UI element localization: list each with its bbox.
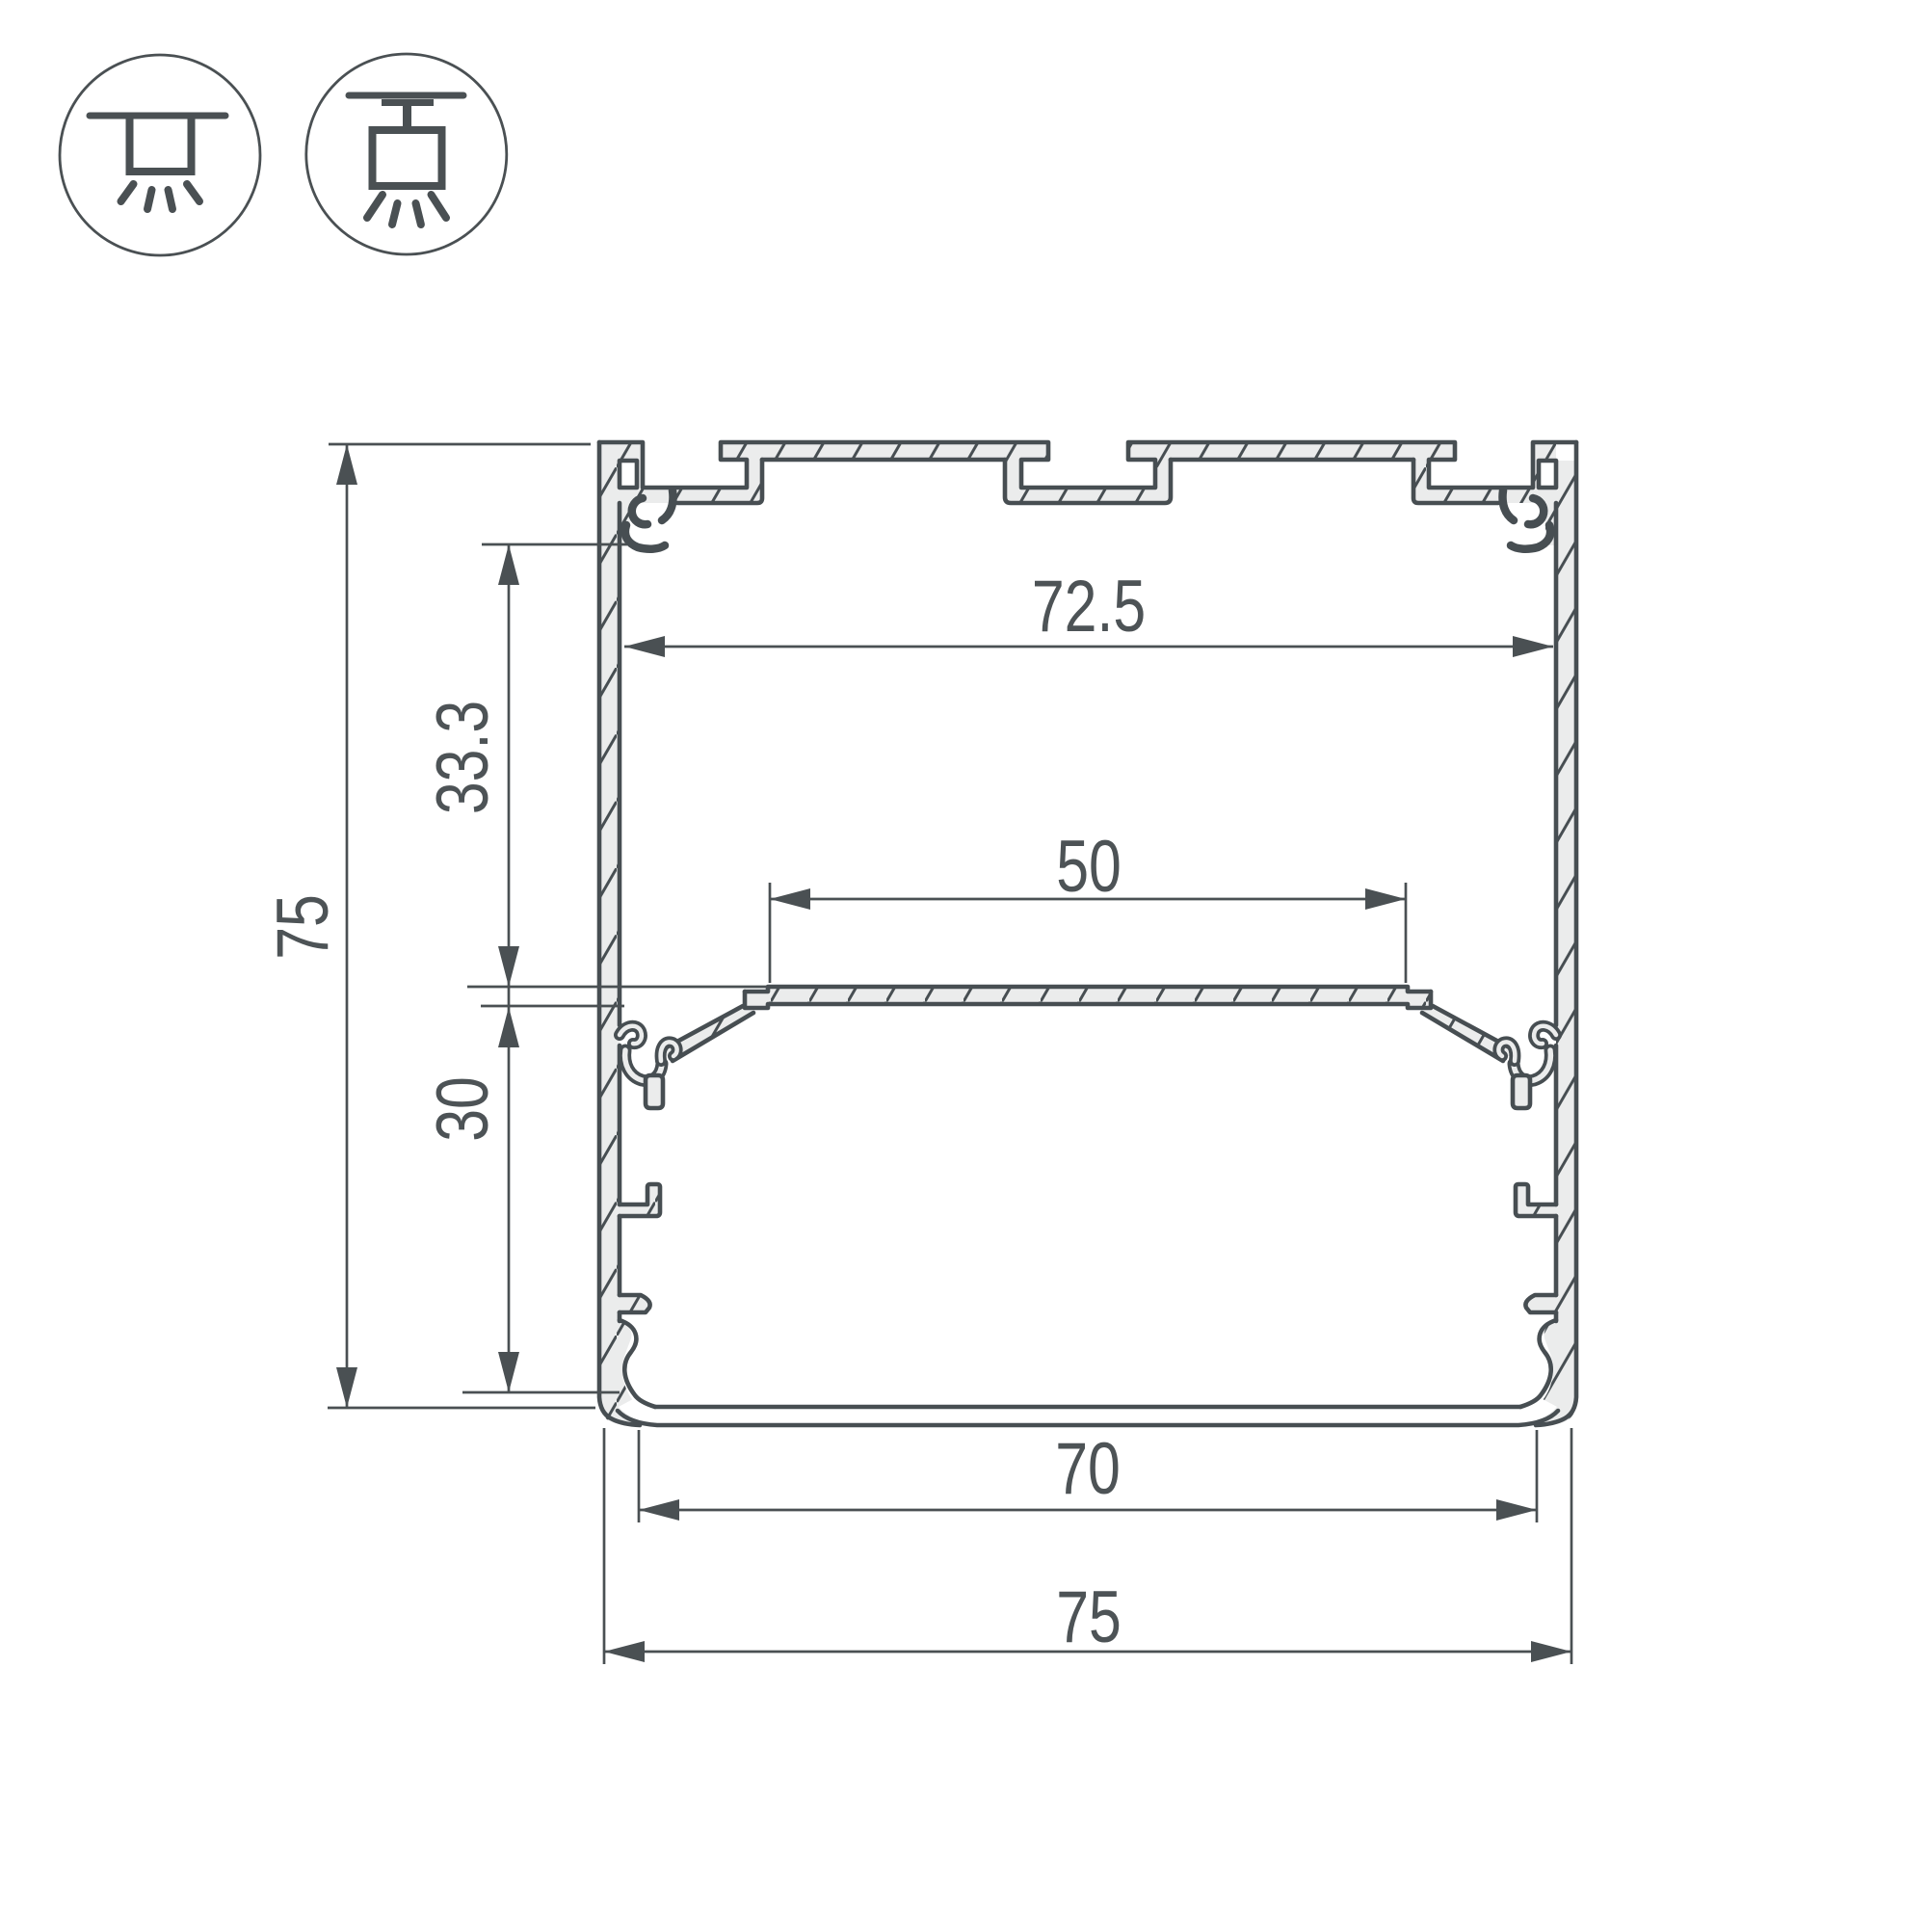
svg-text:70: 70: [1055, 1428, 1121, 1510]
svg-text:50: 50: [1056, 826, 1122, 908]
svg-text:75: 75: [1056, 1576, 1122, 1658]
svg-text:72.5: 72.5: [1032, 566, 1146, 648]
svg-text:75: 75: [262, 894, 344, 960]
svg-text:33.3: 33.3: [422, 701, 504, 814]
svg-text:30: 30: [422, 1076, 504, 1142]
